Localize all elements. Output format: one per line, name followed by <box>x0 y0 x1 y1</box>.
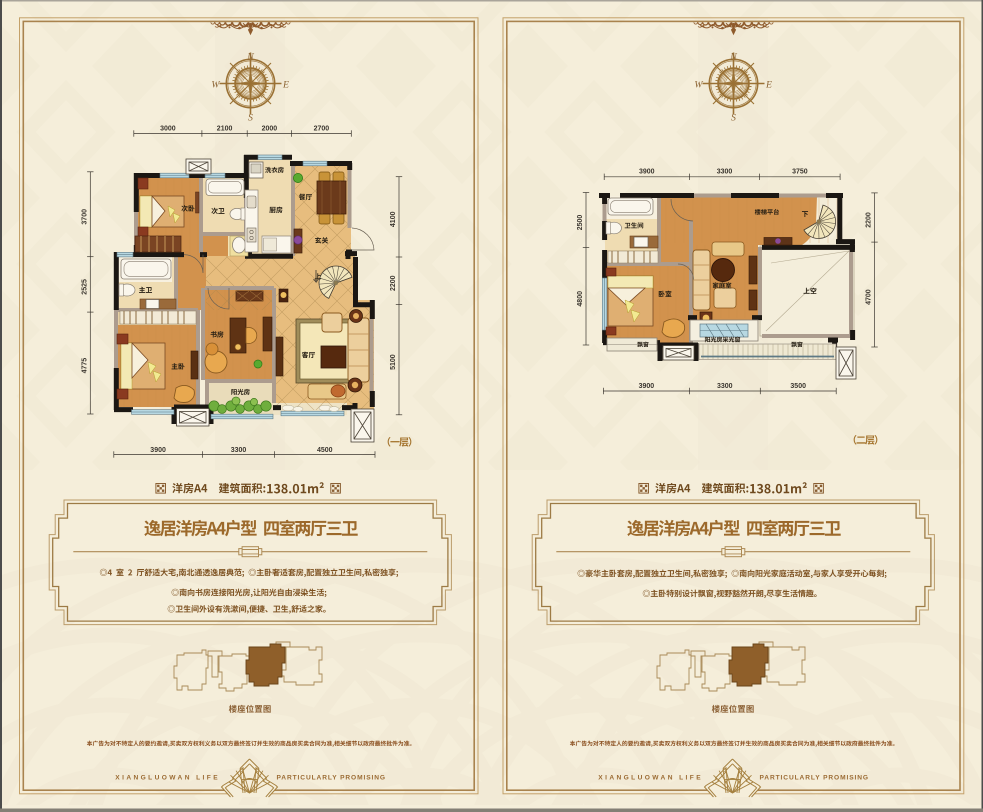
svg-text:3300: 3300 <box>231 447 247 454</box>
svg-text:XIANGLUOWAN LIFE: XIANGLUOWAN LIFE <box>115 774 220 781</box>
svg-text:2700: 2700 <box>314 125 330 132</box>
svg-text:3000: 3000 <box>160 125 176 132</box>
svg-text:2200: 2200 <box>390 275 397 291</box>
svg-text:4500: 4500 <box>317 447 333 454</box>
svg-text:PARTICULARLY PROMISING: PARTICULARLY PROMISING <box>277 774 386 781</box>
svg-text:3750: 3750 <box>792 169 808 176</box>
svg-text:3900: 3900 <box>150 447 166 454</box>
svg-text:E: E <box>765 80 772 91</box>
svg-text:E: E <box>282 80 289 91</box>
svg-text:W: W <box>211 80 220 91</box>
svg-text:3300: 3300 <box>717 383 733 390</box>
svg-text:N: N <box>729 51 737 62</box>
svg-text:2000: 2000 <box>262 125 278 132</box>
svg-text:4775: 4775 <box>82 358 89 374</box>
svg-text:3900: 3900 <box>639 383 655 390</box>
svg-text:2100: 2100 <box>217 125 233 132</box>
svg-text:3500: 3500 <box>790 383 806 390</box>
svg-text:W: W <box>694 80 703 91</box>
svg-text:XIANGLUOWAN LIFE: XIANGLUOWAN LIFE <box>598 774 703 781</box>
svg-text:5100: 5100 <box>390 354 397 370</box>
svg-text:S: S <box>248 113 253 124</box>
svg-text:3300: 3300 <box>717 169 733 176</box>
svg-text:S: S <box>731 113 736 124</box>
svg-text:2525: 2525 <box>82 279 89 295</box>
svg-text:2200: 2200 <box>865 212 872 228</box>
svg-text:3700: 3700 <box>82 209 89 225</box>
svg-text:4700: 4700 <box>865 289 872 305</box>
svg-text:PARTICULARLY PROMISING: PARTICULARLY PROMISING <box>760 774 869 781</box>
svg-text:2500: 2500 <box>577 215 584 231</box>
svg-text:N: N <box>246 51 254 62</box>
svg-text:3900: 3900 <box>639 169 655 176</box>
svg-text:4800: 4800 <box>577 291 584 307</box>
svg-text:4100: 4100 <box>390 211 397 227</box>
